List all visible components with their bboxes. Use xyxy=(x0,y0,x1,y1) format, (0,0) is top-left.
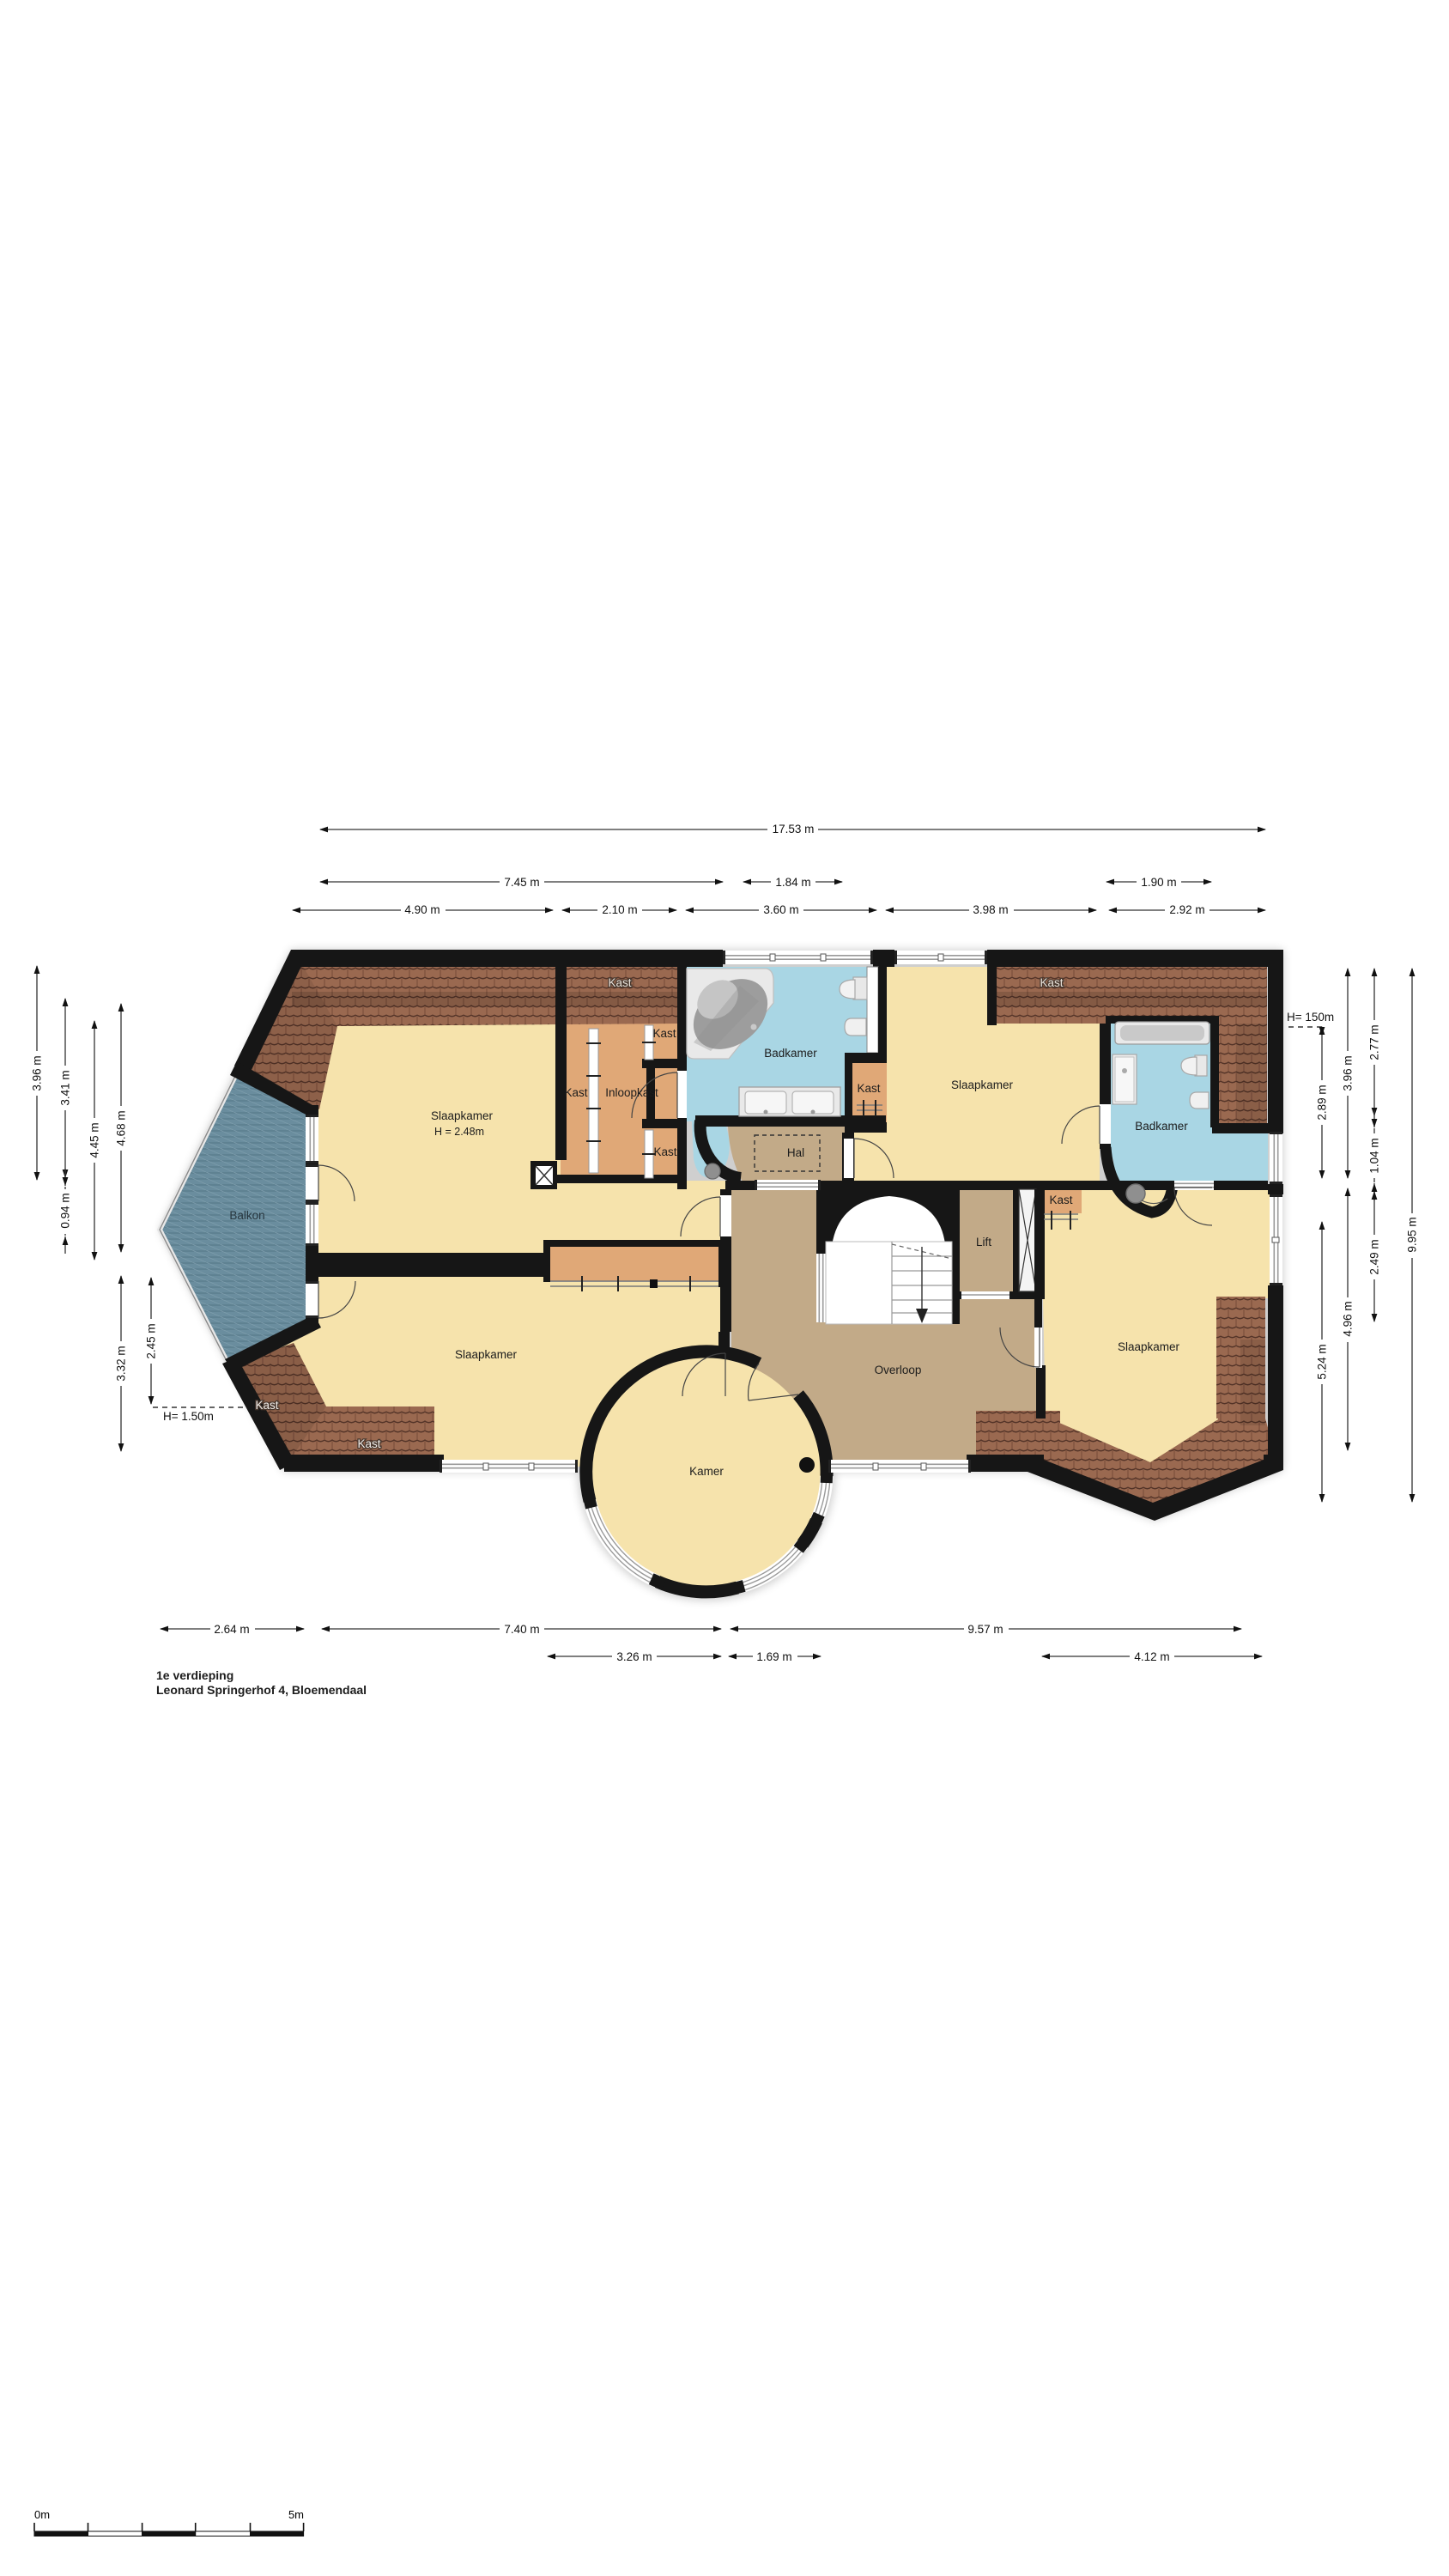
svg-text:17.53 m: 17.53 m xyxy=(773,823,815,835)
svg-text:Slaapkamer: Slaapkamer xyxy=(951,1078,1014,1091)
svg-text:2.64 m: 2.64 m xyxy=(214,1623,249,1636)
svg-text:Kamer: Kamer xyxy=(689,1465,724,1478)
svg-text:2.89 m: 2.89 m xyxy=(1316,1084,1329,1120)
svg-text:3.60 m: 3.60 m xyxy=(763,903,798,916)
svg-text:1.04 m: 1.04 m xyxy=(1368,1138,1381,1173)
svg-text:Leonard Springerhof 4, Bloemen: Leonard Springerhof 4, Bloemendaal xyxy=(156,1683,367,1697)
svg-text:4.45 m: 4.45 m xyxy=(88,1122,101,1157)
svg-text:Slaapkamer: Slaapkamer xyxy=(1118,1340,1180,1353)
svg-text:2.77 m: 2.77 m xyxy=(1368,1024,1381,1060)
svg-text:9.95 m: 9.95 m xyxy=(1406,1217,1419,1252)
svg-text:9.57 m: 9.57 m xyxy=(967,1623,1003,1636)
svg-text:3.96 m: 3.96 m xyxy=(31,1055,44,1091)
svg-text:3.26 m: 3.26 m xyxy=(616,1650,652,1663)
svg-text:7.40 m: 7.40 m xyxy=(504,1623,539,1636)
svg-text:Lift: Lift xyxy=(976,1236,991,1249)
svg-text:Kast: Kast xyxy=(357,1437,380,1450)
svg-text:Kast: Kast xyxy=(1049,1194,1072,1206)
svg-text:5m: 5m xyxy=(288,2508,304,2521)
svg-text:Kast: Kast xyxy=(1040,976,1063,989)
svg-text:5.24 m: 5.24 m xyxy=(1316,1344,1329,1379)
svg-text:2.49 m: 2.49 m xyxy=(1368,1239,1381,1274)
svg-text:Badkamer: Badkamer xyxy=(764,1047,817,1060)
svg-text:3.32 m: 3.32 m xyxy=(115,1346,128,1381)
svg-text:2.45 m: 2.45 m xyxy=(145,1323,158,1358)
svg-text:1.90 m: 1.90 m xyxy=(1141,876,1176,889)
svg-text:2.92 m: 2.92 m xyxy=(1169,903,1204,916)
svg-text:3.98 m: 3.98 m xyxy=(973,903,1008,916)
svg-text:Kast: Kast xyxy=(564,1086,587,1099)
svg-text:3.96 m: 3.96 m xyxy=(1342,1055,1355,1091)
svg-text:4.96 m: 4.96 m xyxy=(1342,1301,1355,1336)
svg-text:1.84 m: 1.84 m xyxy=(775,876,810,889)
svg-text:H= 150m: H= 150m xyxy=(1287,1011,1334,1024)
svg-text:4.12 m: 4.12 m xyxy=(1134,1650,1169,1663)
svg-text:Badkamer: Badkamer xyxy=(1135,1120,1188,1133)
svg-text:Hal: Hal xyxy=(787,1146,804,1159)
svg-text:Slaapkamer: Slaapkamer xyxy=(455,1348,518,1361)
svg-text:1e verdieping: 1e verdieping xyxy=(156,1668,233,1682)
svg-text:7.45 m: 7.45 m xyxy=(504,876,539,889)
svg-text:H = 2.48m: H = 2.48m xyxy=(434,1126,484,1138)
svg-text:Kast: Kast xyxy=(653,1145,676,1158)
svg-text:3.41 m: 3.41 m xyxy=(59,1070,72,1105)
svg-text:Kast: Kast xyxy=(608,976,631,989)
svg-text:Inloopkast: Inloopkast xyxy=(605,1086,658,1099)
svg-text:Kast: Kast xyxy=(857,1082,880,1095)
svg-text:Kast: Kast xyxy=(652,1027,676,1040)
svg-text:4.68 m: 4.68 m xyxy=(115,1110,128,1145)
svg-text:2.10 m: 2.10 m xyxy=(602,903,637,916)
svg-text:Kast: Kast xyxy=(255,1399,278,1412)
svg-text:Overloop: Overloop xyxy=(875,1364,922,1376)
svg-text:Slaapkamer: Slaapkamer xyxy=(431,1109,494,1122)
svg-text:Balkon: Balkon xyxy=(229,1209,264,1222)
svg-text:H= 1.50m: H= 1.50m xyxy=(163,1410,214,1423)
svg-text:4.90 m: 4.90 m xyxy=(404,903,440,916)
svg-text:0.94 m: 0.94 m xyxy=(59,1193,72,1228)
svg-text:1.69 m: 1.69 m xyxy=(756,1650,791,1663)
svg-text:0m: 0m xyxy=(34,2508,50,2521)
